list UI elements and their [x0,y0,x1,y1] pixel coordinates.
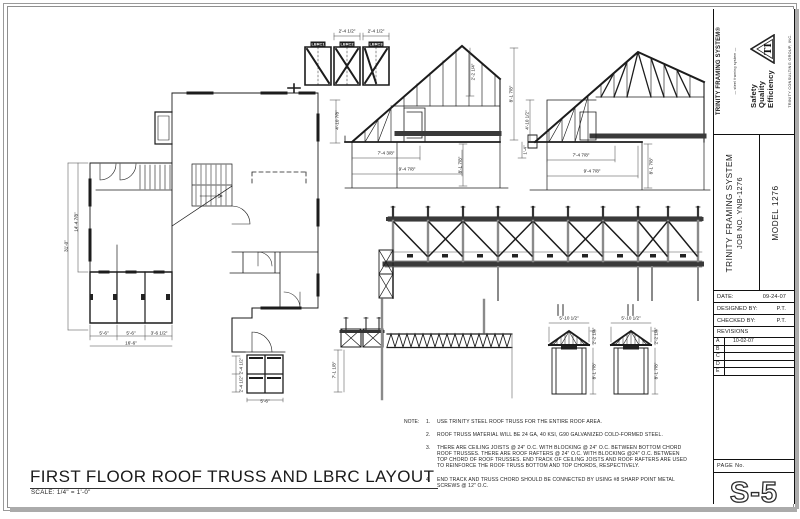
revision-date [725,368,733,375]
gable-truss-2 [611,305,658,394]
revision-row-c: C [714,353,794,361]
note-item: 4. END TRACK AND TRUSS CHORD SHOULD BE C… [426,477,692,489]
designed-by-value: P.T. [777,306,786,312]
checked-by-value: P.T. [777,318,786,324]
revision-letter: E [714,368,725,375]
brand-tagline: — steel framing system — [733,48,737,95]
logo-cell: TRINITY FRAMING SYSTEM® — steel framing … [714,9,794,135]
note-number: 2. [426,432,437,438]
note-number: 1. [426,419,437,425]
revision-letter: D [714,361,725,368]
blank-cell [714,376,794,460]
project-line1: TRINITY FRAMING SYSTEM [725,135,734,291]
revision-letter: B [714,346,725,353]
sheet-scale: SCALE: 1/4" = 1'-0" [31,489,91,496]
project-name-cell: TRINITY FRAMING SYSTEM JOB NO. YNB-1276 [714,135,760,291]
sheet-title: FIRST FLOOR ROOF TRUSS AND LBRC LAYOUT [30,467,438,489]
company-name: TRINITY CONSULTING GROUP, INC. [788,34,792,108]
designed-by-label: DESIGNED BY: [717,306,758,312]
revision-letter: A [714,338,725,345]
drawing-sheet: 2'-4 1/2"2'-4 1/2"LBRC1LBRC2LBRC37'-4 3/… [0,0,800,519]
checked-by-label: CHECKED BY: [717,318,756,324]
model-number: MODEL 1276 [771,135,783,291]
project-cell: TRINITY FRAMING SYSTEM JOB NO. YNB-1276 … [714,135,794,291]
roof-truss-row [379,207,702,300]
revision-date [725,353,733,360]
floor-plan [68,93,340,402]
date-row: DATE: 09-24-07 [714,291,794,303]
revision-row-a: A 10-02-07 [714,338,794,346]
revision-date [725,346,733,353]
note-text: USE TRINITY STEEL ROOF TRUSS FOR THE ENT… [437,419,689,425]
project-line2: JOB NO. YNB-1276 [735,135,744,291]
revision-row-d: D [714,361,794,369]
note-text: THERE ARE CEILING JOISTS @ 24" O.C. WITH… [437,445,689,469]
page-number: S-5 [730,477,778,510]
revision-date: 10-02-07 [725,338,754,345]
page-number-cell: S-5 [714,473,794,513]
revision-row-e: E [714,368,794,376]
revision-row-b: B [714,346,794,354]
checked-by-row: CHECKED BY: P.T. [714,315,794,327]
date-value: 09-24-07 [763,294,786,300]
joist-beam [334,300,512,399]
revisions-label: REVISIONS [717,329,748,335]
revision-date [725,361,733,368]
value-efficiency: Efficiency [767,70,776,108]
note-text: ROOF TRUSS MATERIAL WILL BE 24 GA, 40 KS… [437,432,689,438]
truss-elevation-b [518,52,710,190]
note-text: END TRACK AND TRUSS CHORD SHOULD BE CONN… [437,477,689,489]
notes-heading: NOTE: [404,419,419,425]
svg-text:TI: TI [762,43,774,55]
lbrc-panels [288,33,389,92]
note-item: 2. ROOF TRUSS MATERIAL WILL BE 24 GA, 40… [426,432,692,438]
page-label: PAGE No. [717,463,745,469]
trinity-triangle-logo-icon: TI [750,34,776,64]
revisions-header: REVISIONS [714,327,794,338]
date-label: DATE: [717,294,734,300]
title-block: TRINITY FRAMING SYSTEM® — steel framing … [713,9,795,504]
note-item: 3. THERE ARE CEILING JOISTS @ 24" O.C. W… [426,445,692,469]
note-item: 1. USE TRINITY STEEL ROOF TRUSS FOR THE … [426,419,692,425]
page-number-label-row: PAGE No. [714,460,794,473]
logo-rotated: TRINITY FRAMING SYSTEM® — steel framing … [716,9,792,133]
gable-truss-1 [549,305,596,394]
brand-name: TRINITY FRAMING SYSTEM® [716,27,722,115]
designed-by-row: DESIGNED BY: P.T. [714,303,794,315]
brand-values: Safety Quality Efficiency [750,70,776,108]
model-cell: MODEL 1276 [760,135,794,291]
revision-letter: C [714,353,725,360]
cad-linework [0,0,800,519]
note-number: 3. [426,445,437,469]
